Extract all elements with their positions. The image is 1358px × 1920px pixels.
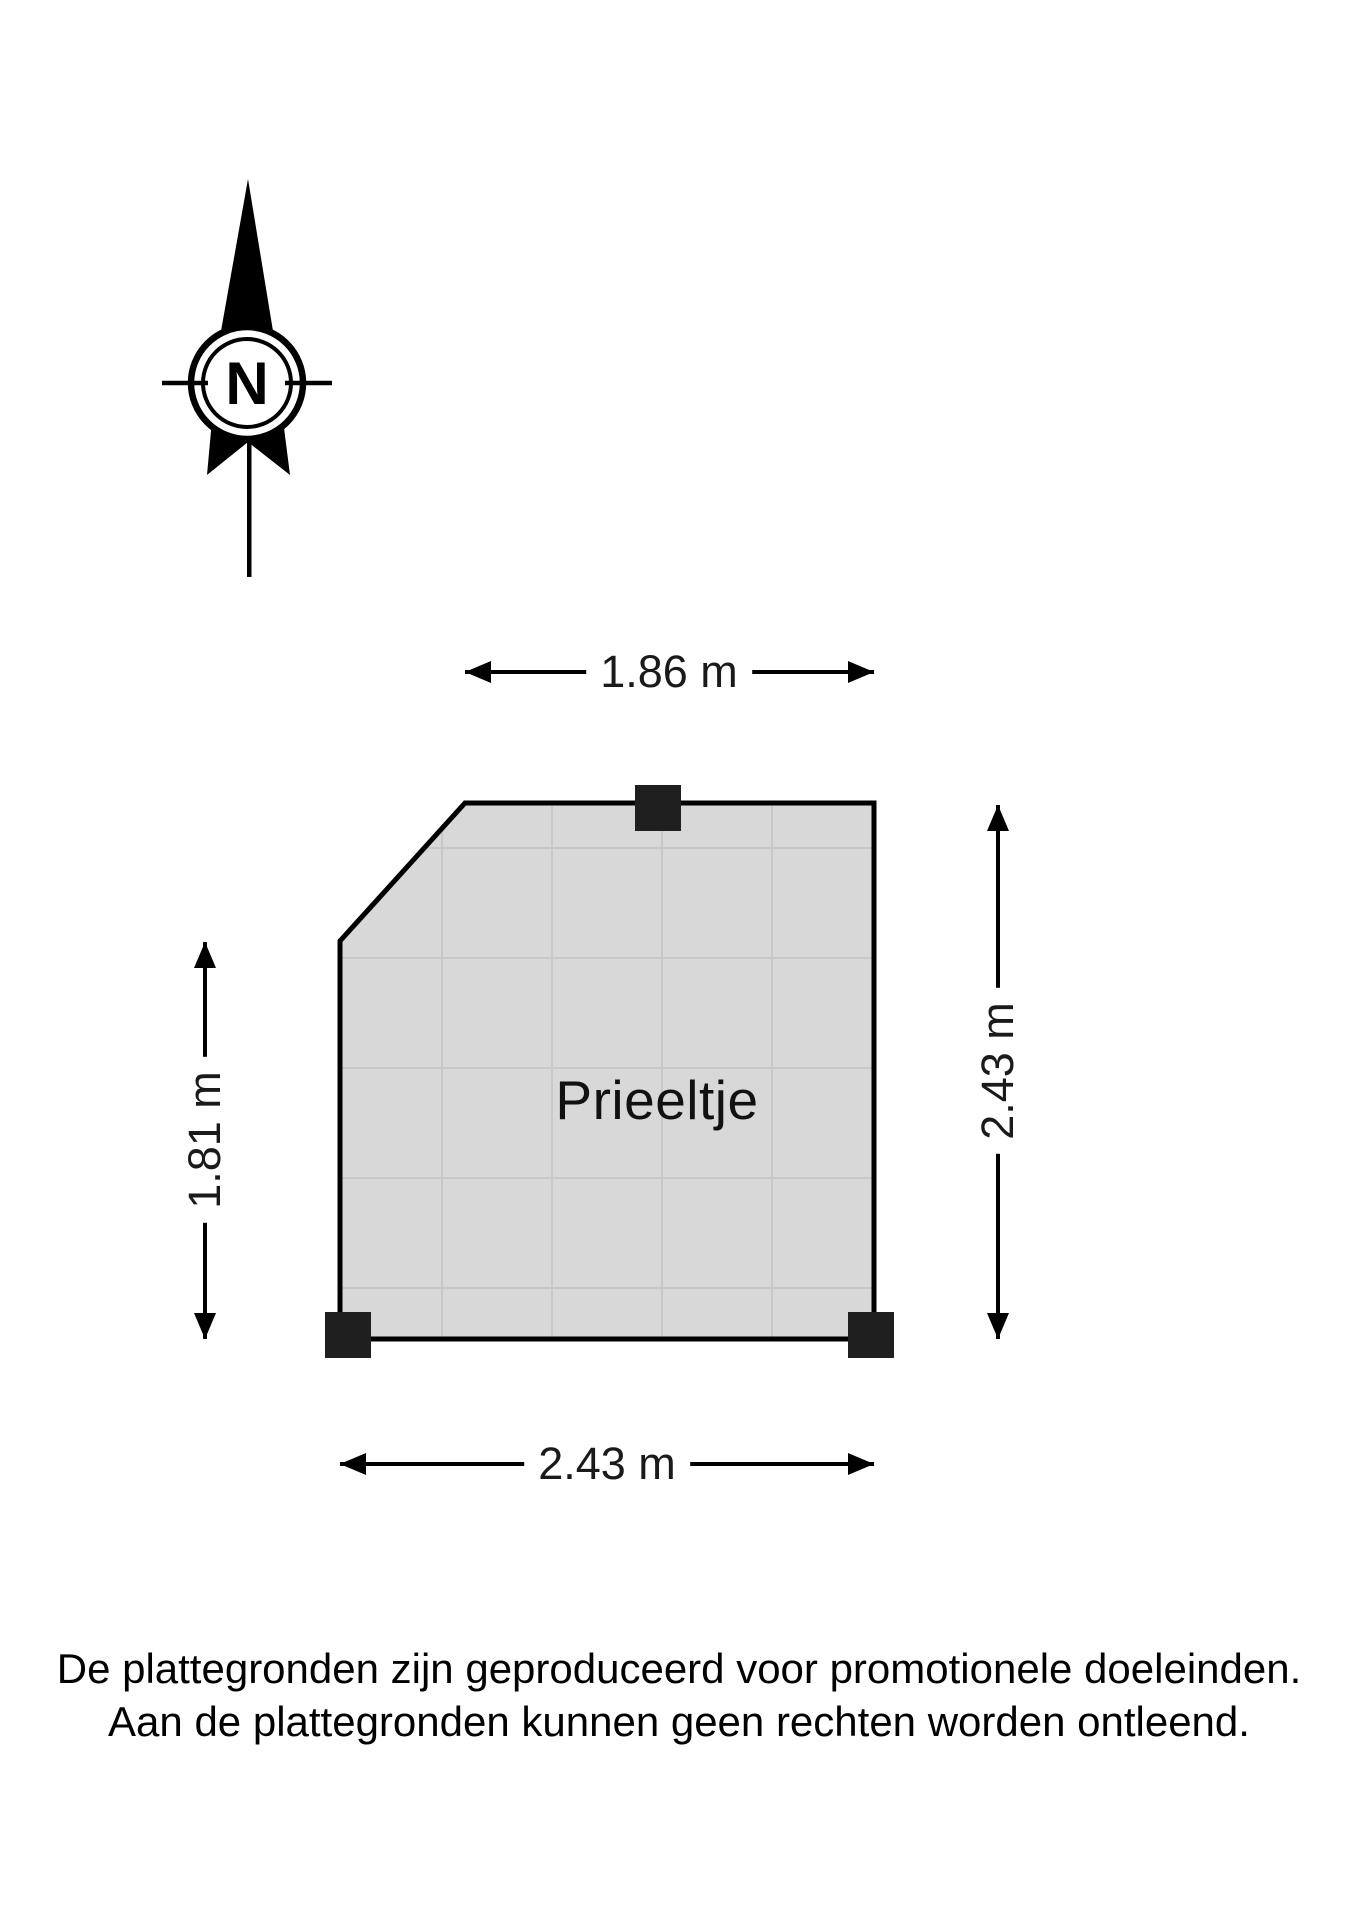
arrowhead-right [848,661,874,683]
dimension-label-right: 2.43 m [972,988,1024,1154]
dimension-label-top: 1.86 m [586,646,752,698]
disclaimer-line-2: Aan de plattegronden kunnen geen rechten… [0,1695,1358,1748]
arrowhead-up [987,805,1009,831]
room-label: Prieeltje [555,1068,758,1132]
compass-needle-line [247,430,252,577]
disclaimer: De plattegronden zijn geproduceerd voor … [0,1642,1358,1748]
floorplan-page: N [0,0,1358,1920]
dimension-label-left: 1.81 m [179,1057,231,1223]
dimension-label-bottom: 2.43 m [524,1438,690,1490]
compass-north-spike [221,179,273,331]
arrowhead-left [465,661,491,683]
floorplan-drawing: N [0,0,1358,1920]
post-top [635,785,681,831]
arrowhead-left [340,1453,366,1475]
arrowhead-down [194,1313,216,1339]
arrowhead-up [194,942,216,968]
compass-north-label: N [225,350,268,417]
north-compass-icon: N [162,179,332,577]
arrowhead-down [987,1313,1009,1339]
post-bottom-left [325,1312,371,1358]
arrowhead-right [848,1453,874,1475]
disclaimer-line-1: De plattegronden zijn geproduceerd voor … [0,1642,1358,1695]
post-bottom-right [848,1312,894,1358]
